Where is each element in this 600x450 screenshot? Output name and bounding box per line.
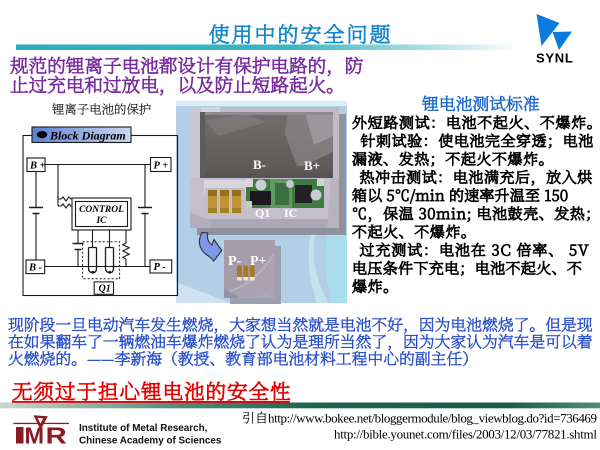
svg-text:B +: B + xyxy=(29,161,46,172)
svg-text:IC: IC xyxy=(95,216,107,226)
svg-text:Institute of Metal Research,: Institute of Metal Research, xyxy=(79,423,208,434)
svg-text:P-: P- xyxy=(228,254,242,269)
svg-text:Block Diagram: Block Diagram xyxy=(49,128,126,142)
svg-text:B -: B - xyxy=(28,263,43,274)
svg-text:SYNL: SYNL xyxy=(536,51,573,66)
svg-text:CONTROL: CONTROL xyxy=(79,205,124,215)
svg-text:P -: P - xyxy=(154,262,167,273)
svg-text:http://www.bokee.net/bloggermo: http://www.bokee.net/bloggermodule/blog_… xyxy=(268,411,597,426)
svg-text:B-: B- xyxy=(253,157,266,172)
svg-text:R: R xyxy=(46,422,67,449)
svg-text:Chinese Academy of Sciences: Chinese Academy of Sciences xyxy=(79,436,222,447)
svg-text:Q1: Q1 xyxy=(255,206,270,220)
svg-text:http://bible.younet.com/files/: http://bible.younet.com/files/2003/12/03… xyxy=(334,427,597,442)
svg-text:B+: B+ xyxy=(304,158,320,173)
svg-text:Q1: Q1 xyxy=(99,284,111,295)
svg-text:P+: P+ xyxy=(250,254,267,269)
svg-text:P +: P + xyxy=(154,161,169,172)
svg-text:IC: IC xyxy=(284,206,297,220)
